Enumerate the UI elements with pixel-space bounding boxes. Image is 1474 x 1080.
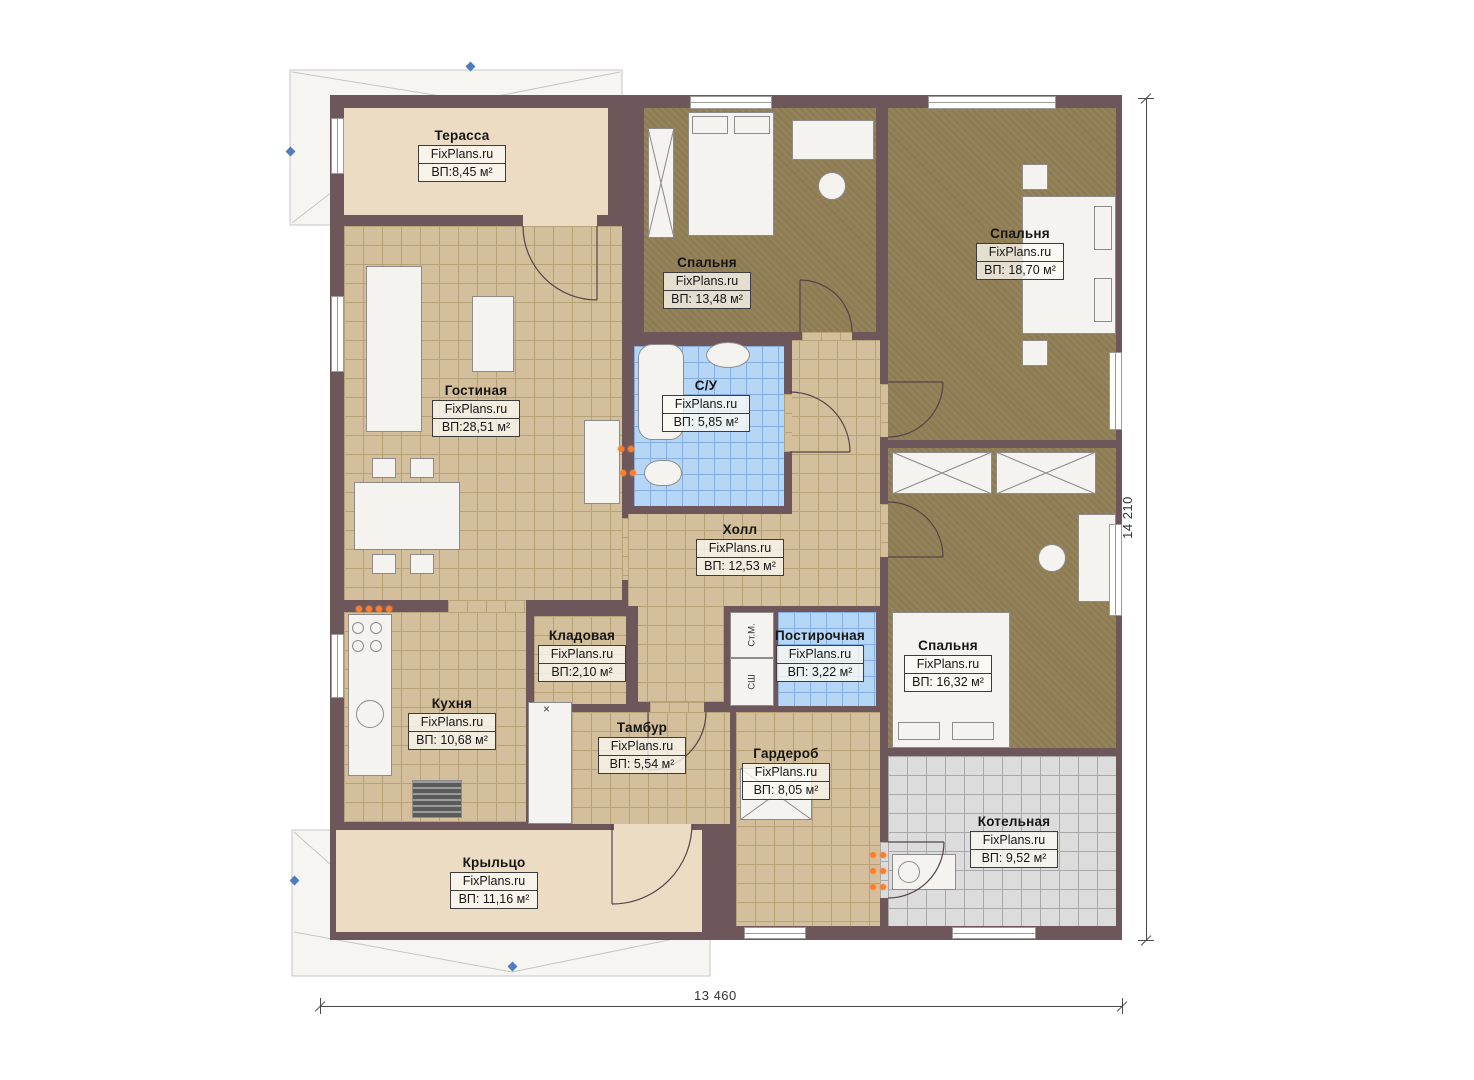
- dimension-width-value: 13 460: [694, 988, 737, 1003]
- room-name: С/У: [662, 378, 750, 393]
- nightstand: [1022, 340, 1048, 366]
- room-area: ВП: 12,53 м²: [696, 557, 784, 576]
- socket-marker: [356, 606, 372, 612]
- window-bedroom1-top: [690, 96, 772, 109]
- room-name: Терасса: [418, 128, 506, 143]
- room-label-boiler: Котельная FixPlans.ru ВП: 9,52 м²: [970, 814, 1058, 868]
- dimension-end: [1122, 998, 1123, 1014]
- survey-point-marker: [466, 62, 476, 72]
- bedroom1-doorway: [802, 332, 852, 340]
- bedroom3-doorway: [880, 504, 888, 557]
- brand-watermark: FixPlans.ru: [418, 145, 506, 164]
- wardrobe-closet: [648, 128, 674, 238]
- room-area: ВП: 3,22 м²: [776, 663, 864, 682]
- room-label-bedroom3: Спальня FixPlans.ru ВП: 16,32 м²: [904, 638, 992, 692]
- survey-point-marker: [508, 962, 518, 972]
- window-bedroom2-top: [928, 96, 1056, 109]
- dimension-line-width: [320, 1006, 1122, 1007]
- window-boiler-bottom: [952, 927, 1036, 939]
- room-name: Кладовая: [538, 628, 626, 643]
- socket-marker: [618, 446, 634, 452]
- entrance-doorway: [614, 824, 692, 830]
- room-label-kitchen: Кухня FixPlans.ru ВП: 10,68 м²: [408, 696, 496, 750]
- room-label-storage: Кладовая FixPlans.ru ВП:2,10 м²: [538, 628, 626, 682]
- socket-marker: [620, 470, 636, 476]
- hall-vestibule-doorway: [650, 702, 704, 712]
- brand-watermark: FixPlans.ru: [663, 272, 751, 291]
- brand-watermark: FixPlans.ru: [776, 645, 864, 664]
- room-area: ВП: 9,52 м²: [970, 849, 1058, 868]
- room-area: ВП: 10,68 м²: [408, 731, 496, 750]
- wardrobe-closet: [996, 452, 1096, 494]
- room-name: Котельная: [970, 814, 1058, 829]
- kitchen-sink: [356, 700, 384, 728]
- pillow: [734, 116, 770, 134]
- room-area: ВП:8,45 м²: [418, 163, 506, 182]
- socket-marker: [376, 606, 392, 612]
- dining-chair: [372, 458, 396, 478]
- room-label-hall: Холл FixPlans.ru ВП: 12,53 м²: [696, 522, 784, 576]
- kitchen-niche: [528, 702, 572, 824]
- room-name: Спальня: [663, 255, 751, 270]
- bathroom-doorway: [784, 394, 792, 452]
- room-label-bedroom1: Спальня FixPlans.ru ВП: 13,48 м²: [663, 255, 751, 309]
- room-name: Постирочная: [775, 628, 865, 643]
- room-area: ВП:28,51 м²: [432, 418, 520, 437]
- dining-table: [354, 482, 460, 550]
- sofa: [366, 266, 422, 432]
- pillow: [1094, 278, 1112, 322]
- sink: [706, 342, 750, 368]
- pillow: [898, 722, 940, 740]
- pillow: [952, 722, 994, 740]
- room-label-wardrobe: Гардероб FixPlans.ru ВП: 8,05 м²: [742, 746, 830, 800]
- brand-watermark: FixPlans.ru: [598, 737, 686, 756]
- wardrobe-closet: [892, 452, 992, 494]
- window-kitchen-left: [331, 634, 344, 698]
- brand-watermark: FixPlans.ru: [904, 655, 992, 674]
- brand-watermark: FixPlans.ru: [696, 539, 784, 558]
- brand-watermark: FixPlans.ru: [662, 395, 750, 414]
- room-area: ВП: 8,05 м²: [742, 781, 830, 800]
- window-living-left: [331, 296, 344, 372]
- window-bedroom2-right: [1109, 352, 1122, 430]
- brand-watermark: FixPlans.ru: [976, 243, 1064, 262]
- terrace-doorway: [523, 215, 597, 226]
- dimension-line-height: [1146, 98, 1147, 940]
- room-name: Гардероб: [742, 746, 830, 761]
- brand-watermark: FixPlans.ru: [538, 645, 626, 664]
- room-area: ВП:2,10 м²: [538, 663, 626, 682]
- dryer-label: СШ: [747, 674, 758, 690]
- dimension-height-value: 14 210: [1120, 496, 1135, 539]
- kitchen-counter: [348, 614, 392, 776]
- room-area: ВП: 5,54 м²: [598, 755, 686, 774]
- tv-cabinet: [584, 420, 620, 504]
- desk: [792, 120, 874, 160]
- toilet: [644, 460, 682, 486]
- room-name: Холл: [696, 522, 784, 537]
- room-label-vestibule: Тамбур FixPlans.ru ВП: 5,54 м²: [598, 720, 686, 774]
- dining-chair: [372, 554, 396, 574]
- pillow: [1094, 206, 1112, 250]
- survey-point-marker: [290, 876, 300, 886]
- room-name: Спальня: [976, 226, 1064, 241]
- floor-plan-canvas: Ст.М. СШ × Терасса FixPlan: [0, 0, 1474, 1080]
- brand-watermark: FixPlans.ru: [970, 831, 1058, 850]
- desk-chair: [1038, 544, 1066, 572]
- socket-marker: [870, 852, 886, 858]
- socket-marker: [870, 868, 886, 874]
- room-area: ВП: 5,85 м²: [662, 413, 750, 432]
- living-hall-opening: [622, 518, 628, 580]
- room-label-porch: Крыльцо FixPlans.ru ВП: 11,16 м²: [450, 855, 538, 909]
- room-area: ВП: 13,48 м²: [663, 290, 751, 309]
- room-name: Крыльцо: [450, 855, 538, 870]
- pillow: [692, 116, 728, 134]
- brand-watermark: FixPlans.ru: [432, 400, 520, 419]
- dimension-end: [1138, 940, 1154, 941]
- window-wardrobe-bottom: [744, 927, 806, 939]
- room-label-terrace: Терасса FixPlans.ru ВП:8,45 м²: [418, 128, 506, 182]
- room-label-bathroom: С/У FixPlans.ru ВП: 5,85 м²: [662, 378, 750, 432]
- room-area: ВП: 18,70 м²: [976, 261, 1064, 280]
- washing-machine-label: Ст.М.: [747, 623, 758, 646]
- brand-watermark: FixPlans.ru: [450, 872, 538, 891]
- storage-divider-wall: [626, 606, 638, 706]
- stove-burner: [352, 622, 364, 634]
- room-area: ВП: 16,32 м²: [904, 673, 992, 692]
- bedroom2-doorway: [880, 384, 888, 437]
- desk-chair: [818, 172, 846, 200]
- room-name: Гостиная: [432, 383, 520, 398]
- cross-marker: ×: [543, 702, 550, 716]
- room-name: Тамбур: [598, 720, 686, 735]
- brand-watermark: FixPlans.ru: [742, 763, 830, 782]
- room-label-bedroom2: Спальня FixPlans.ru ВП: 18,70 м²: [976, 226, 1064, 280]
- dining-chair: [410, 554, 434, 574]
- stove-burner: [370, 640, 382, 652]
- room-label-laundry: Постирочная FixPlans.ru ВП: 3,22 м²: [775, 628, 865, 682]
- dining-chair: [410, 458, 434, 478]
- dimension-end: [1138, 98, 1154, 99]
- coffee-table: [472, 296, 514, 372]
- room-name: Кухня: [408, 696, 496, 711]
- stove-burner: [352, 640, 364, 652]
- socket-marker: [870, 884, 886, 890]
- dimension-end: [320, 998, 321, 1014]
- survey-point-marker: [286, 147, 296, 157]
- brand-watermark: FixPlans.ru: [408, 713, 496, 732]
- boiler-dial: [898, 861, 920, 883]
- living-kitchen-opening: [448, 600, 526, 612]
- window-terrace-left: [331, 118, 344, 174]
- room-name: Спальня: [904, 638, 992, 653]
- stove-burner: [370, 622, 382, 634]
- kitchen-stove-grill: [412, 780, 462, 818]
- nightstand: [1022, 164, 1048, 190]
- room-label-living: Гостиная FixPlans.ru ВП:28,51 м²: [432, 383, 520, 437]
- room-area: ВП: 11,16 м²: [450, 890, 538, 909]
